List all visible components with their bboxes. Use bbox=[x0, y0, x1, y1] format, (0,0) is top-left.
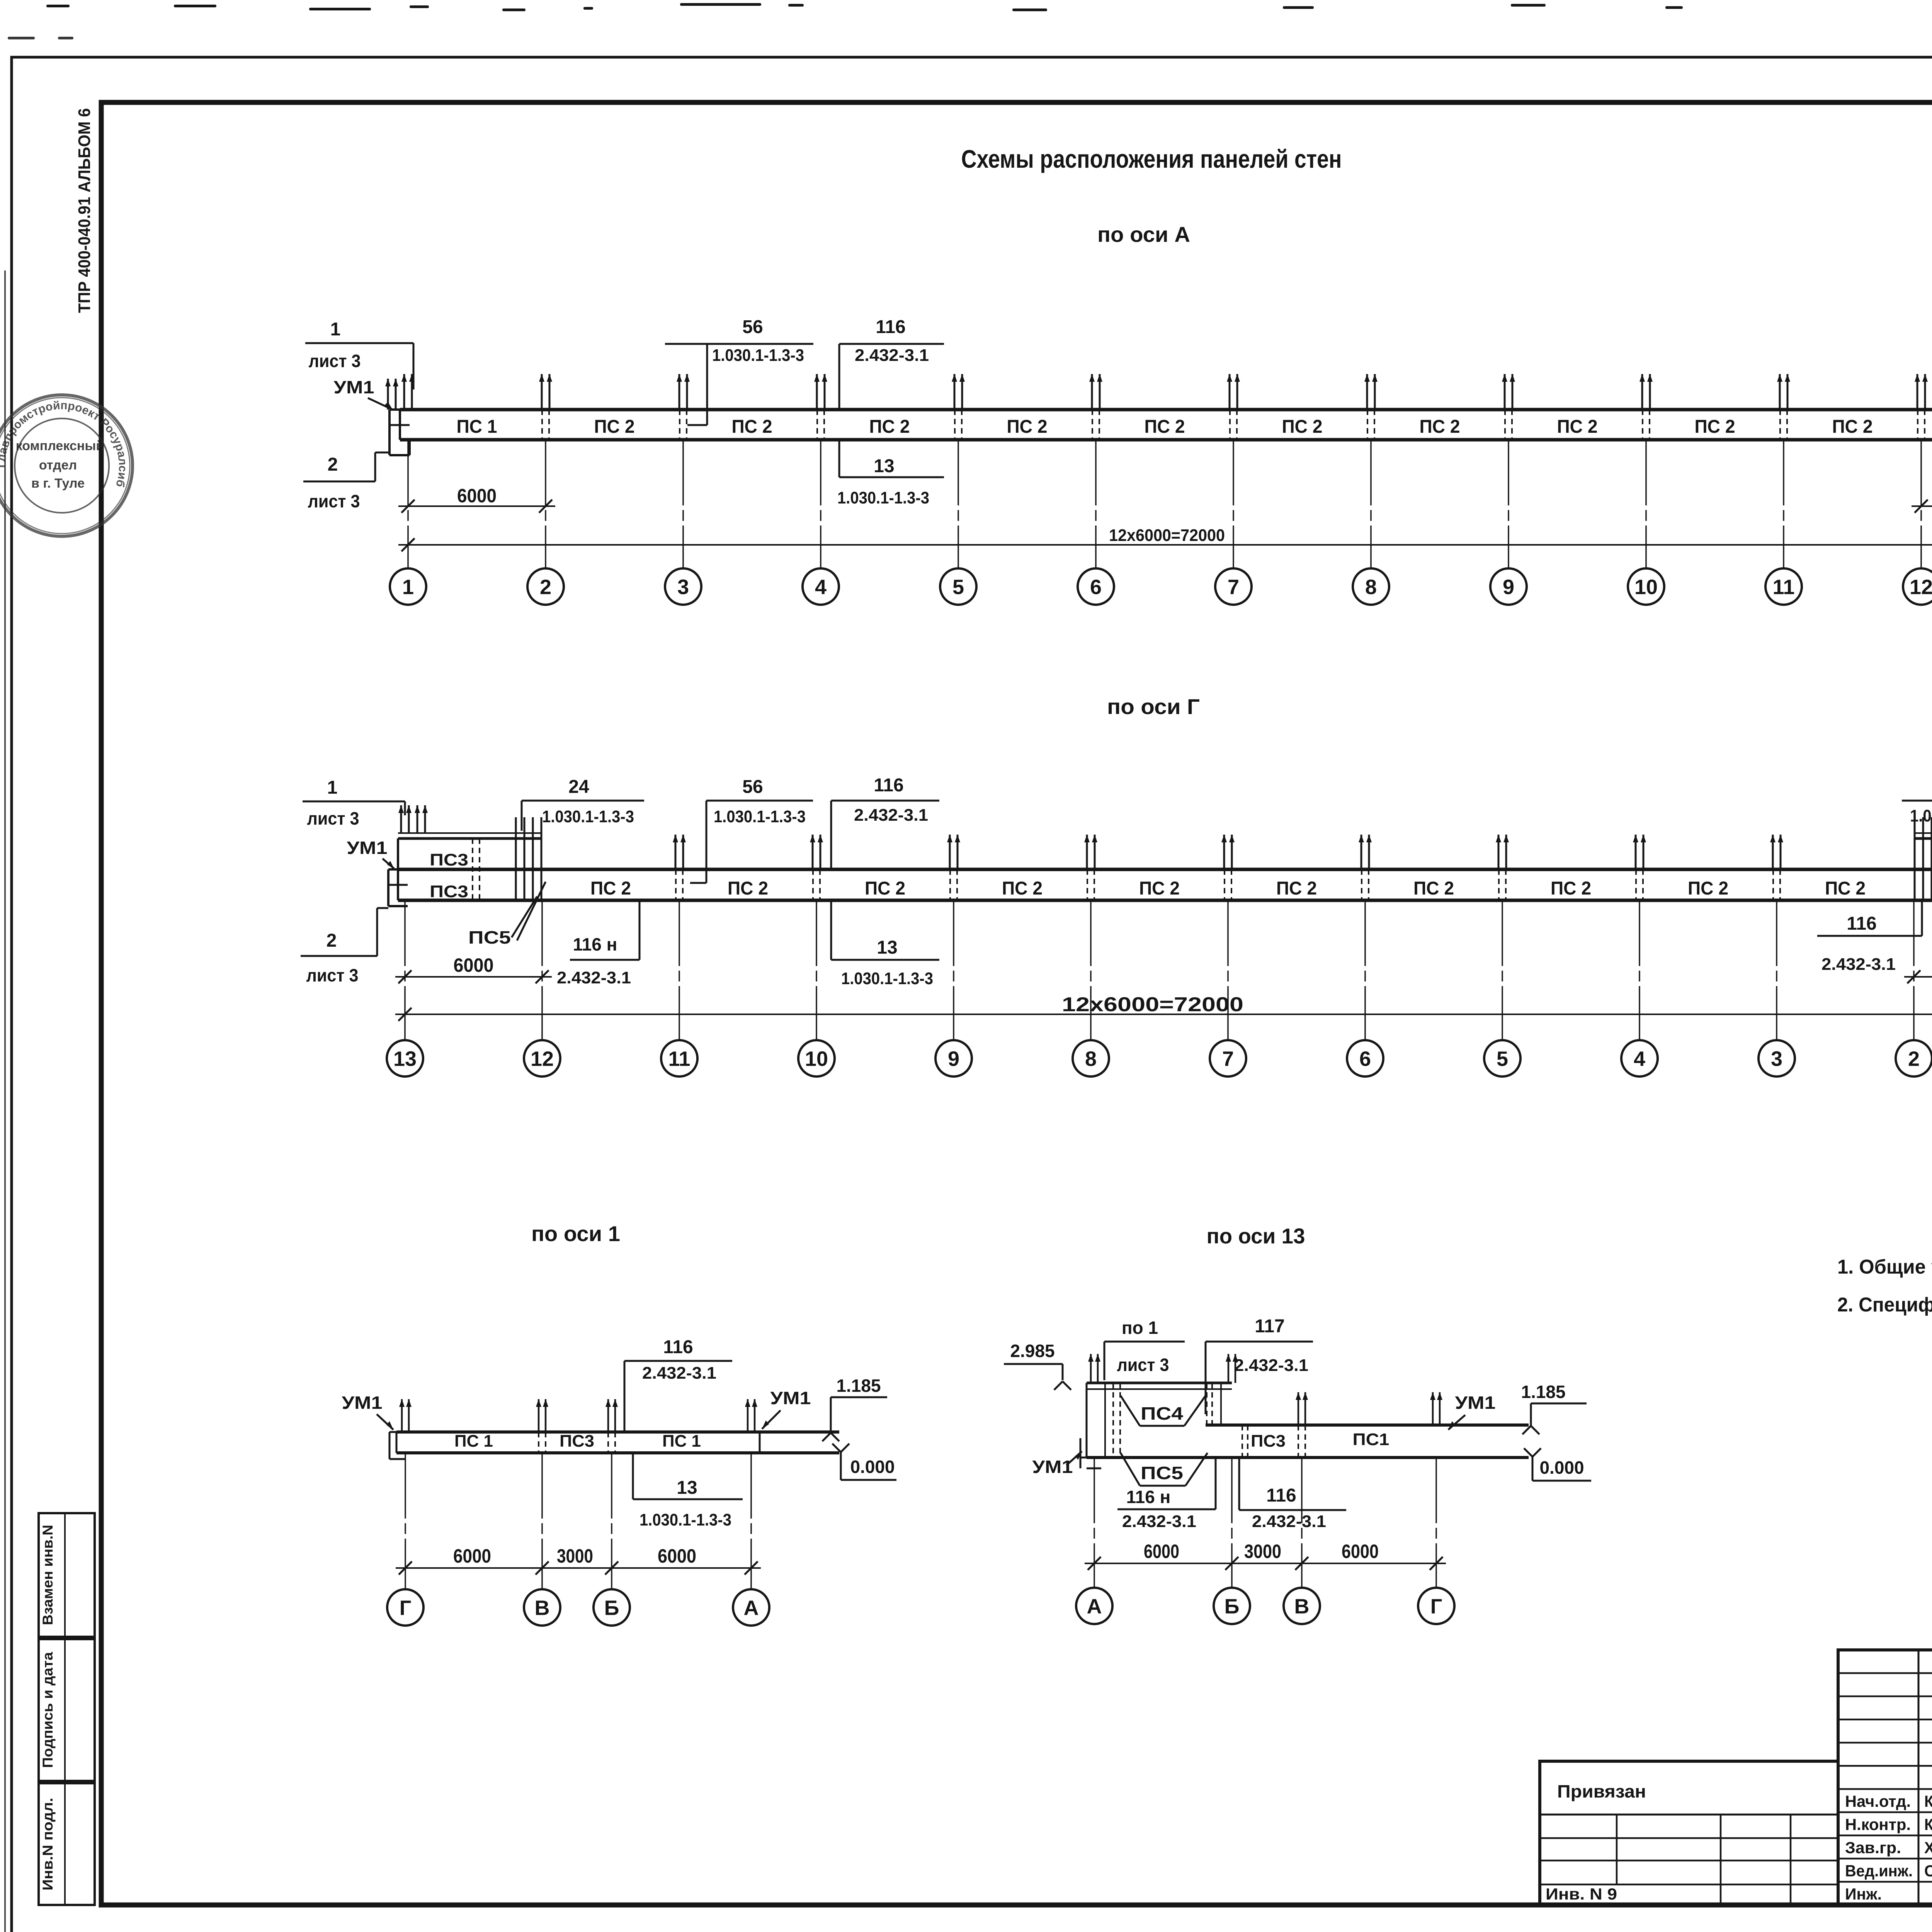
svg-text:6000: 6000 bbox=[454, 954, 494, 976]
svg-text:Серикова: Серикова bbox=[1924, 1862, 1932, 1880]
svg-text:А: А bbox=[744, 1596, 759, 1619]
svg-text:6000: 6000 bbox=[1144, 1541, 1179, 1562]
svg-text:11: 11 bbox=[1772, 575, 1794, 599]
svg-text:ПС 2: ПС 2 bbox=[728, 878, 768, 899]
svg-text:9: 9 bbox=[948, 1047, 959, 1070]
svg-text:ПС 1: ПС 1 bbox=[454, 1432, 493, 1451]
svg-text:2: 2 bbox=[328, 454, 338, 475]
svg-text:УМ1: УМ1 bbox=[334, 377, 374, 397]
svg-text:УМ1: УМ1 bbox=[1455, 1393, 1496, 1413]
svg-text:1.030.1-1.3-3: 1.030.1-1.3-3 bbox=[712, 346, 804, 365]
svg-text:12: 12 bbox=[531, 1047, 554, 1070]
svg-text:Б: Б bbox=[1225, 1595, 1240, 1618]
svg-text:117: 117 bbox=[1255, 1316, 1284, 1337]
svg-text:2. Спецификацию к схемам распо: 2. Спецификацию к схемам расположения па… bbox=[1837, 1294, 1932, 1316]
svg-text:Подпись и дата: Подпись и дата bbox=[40, 1652, 56, 1768]
svg-text:2.432-3.1: 2.432-3.1 bbox=[642, 1364, 716, 1383]
svg-text:ПС 1: ПС 1 bbox=[457, 417, 497, 437]
svg-text:лист 3: лист 3 bbox=[307, 808, 359, 828]
svg-text:Взамен инв.N: Взамен инв.N bbox=[40, 1525, 56, 1625]
svg-text:Вед.инж.: Вед.инж. bbox=[1845, 1862, 1913, 1880]
svg-text:2.432-3.1: 2.432-3.1 bbox=[557, 968, 631, 987]
svg-text:ПС 2: ПС 2 bbox=[1557, 417, 1598, 437]
svg-text:9: 9 bbox=[1503, 575, 1514, 599]
svg-text:ПС3: ПС3 bbox=[430, 850, 468, 869]
svg-text:Б: Б bbox=[604, 1596, 619, 1619]
svg-text:лист 3: лист 3 bbox=[308, 491, 360, 511]
svg-text:ПС 2: ПС 2 bbox=[1413, 878, 1454, 899]
svg-text:по оси А: по оси А bbox=[1097, 222, 1190, 247]
svg-text:2.432-3.1: 2.432-3.1 bbox=[855, 346, 929, 365]
svg-text:по оси 13: по оси 13 bbox=[1207, 1224, 1305, 1248]
svg-text:116: 116 bbox=[874, 775, 903, 796]
svg-text:1.030.1-1.3-3: 1.030.1-1.3-3 bbox=[1910, 806, 1932, 825]
svg-text:ПС 2: ПС 2 bbox=[1276, 878, 1317, 899]
svg-text:116: 116 bbox=[1266, 1485, 1296, 1506]
svg-text:ПС 2: ПС 2 bbox=[1139, 878, 1180, 899]
svg-text:2: 2 bbox=[327, 930, 337, 951]
svg-text:1.030.1-1.3-3: 1.030.1-1.3-3 bbox=[714, 807, 806, 826]
svg-text:13: 13 bbox=[874, 456, 894, 476]
svg-text:13: 13 bbox=[877, 937, 897, 958]
svg-text:8: 8 bbox=[1365, 575, 1377, 599]
svg-text:ПС3: ПС3 bbox=[560, 1432, 594, 1451]
svg-text:УМ1: УМ1 bbox=[770, 1388, 811, 1408]
svg-text:1.185: 1.185 bbox=[1521, 1382, 1565, 1402]
svg-text:1.030.1-1.3-3: 1.030.1-1.3-3 bbox=[837, 488, 929, 507]
svg-text:7: 7 bbox=[1228, 575, 1239, 599]
svg-text:11: 11 bbox=[668, 1047, 690, 1070]
svg-text:8: 8 bbox=[1085, 1047, 1097, 1070]
svg-text:Зав.гр.: Зав.гр. bbox=[1845, 1838, 1901, 1857]
svg-text:ПС 2: ПС 2 bbox=[1420, 417, 1460, 437]
svg-text:116: 116 bbox=[1847, 913, 1876, 934]
svg-text:ПС 2: ПС 2 bbox=[865, 878, 905, 899]
svg-text:6000: 6000 bbox=[1342, 1541, 1379, 1562]
svg-text:ТПР 400-040.91 АЛЬБОМ 6: ТПР 400-040.91 АЛЬБОМ 6 bbox=[75, 108, 94, 313]
svg-text:3: 3 bbox=[677, 575, 689, 599]
svg-text:0.000: 0.000 bbox=[1539, 1458, 1584, 1478]
svg-text:3000: 3000 bbox=[1244, 1541, 1281, 1562]
svg-text:5: 5 bbox=[952, 575, 964, 599]
svg-text:13: 13 bbox=[393, 1047, 417, 1070]
svg-text:56: 56 bbox=[742, 317, 763, 337]
svg-text:ПС 2: ПС 2 bbox=[1002, 878, 1043, 899]
svg-text:2.432-3.1: 2.432-3.1 bbox=[1252, 1512, 1326, 1531]
svg-text:ПС 2: ПС 2 bbox=[590, 878, 631, 899]
svg-text:в г. Туле: в г. Туле bbox=[31, 476, 85, 491]
svg-text:ПС 2: ПС 2 bbox=[1145, 417, 1185, 437]
svg-text:А: А bbox=[1087, 1595, 1102, 1618]
svg-text:1.030.1-1.3-3: 1.030.1-1.3-3 bbox=[542, 807, 634, 826]
svg-text:Кондратьев: Кондратьев bbox=[1924, 1792, 1932, 1810]
svg-text:ПС3: ПС3 bbox=[430, 882, 468, 901]
svg-text:ПС 2: ПС 2 bbox=[1825, 878, 1866, 899]
svg-text:УМ1: УМ1 bbox=[342, 1393, 383, 1413]
svg-text:ПС4: ПС4 bbox=[1141, 1403, 1183, 1423]
svg-text:ПС1: ПС1 bbox=[1353, 1430, 1389, 1449]
svg-text:12x6000=72000: 12x6000=72000 bbox=[1109, 526, 1225, 545]
svg-text:ПС 2: ПС 2 bbox=[1832, 417, 1873, 437]
svg-text:56: 56 bbox=[742, 777, 763, 797]
svg-text:10: 10 bbox=[1634, 575, 1658, 599]
svg-text:Хруслова: Хруслова bbox=[1924, 1838, 1932, 1857]
svg-text:по оси 1: по оси 1 bbox=[531, 1221, 620, 1246]
svg-text:Инж.: Инж. bbox=[1845, 1885, 1882, 1903]
svg-text:2.432-3.1: 2.432-3.1 bbox=[1234, 1356, 1308, 1375]
svg-text:4: 4 bbox=[815, 575, 827, 599]
svg-text:10: 10 bbox=[805, 1047, 828, 1070]
svg-text:В: В bbox=[535, 1596, 550, 1619]
svg-text:116 н: 116 н bbox=[573, 934, 617, 954]
svg-text:6: 6 bbox=[1359, 1047, 1371, 1070]
svg-text:1.185: 1.185 bbox=[836, 1376, 881, 1396]
svg-text:1. Общие указания см. на лист: 1. Общие указания см. на листе 1. bbox=[1837, 1256, 1932, 1278]
svg-text:1: 1 bbox=[402, 575, 414, 599]
svg-text:13: 13 bbox=[677, 1478, 697, 1498]
svg-text:5: 5 bbox=[1497, 1047, 1508, 1070]
svg-text:УМ1: УМ1 bbox=[347, 838, 388, 858]
svg-text:ПС 2: ПС 2 bbox=[732, 417, 772, 437]
svg-text:Инв.N подл.: Инв.N подл. bbox=[40, 1798, 56, 1891]
svg-text:Привязан: Привязан bbox=[1557, 1781, 1646, 1801]
svg-text:2.432-3.1: 2.432-3.1 bbox=[1821, 955, 1896, 974]
svg-text:лист 3: лист 3 bbox=[1117, 1355, 1169, 1375]
svg-text:1.030.1-1.3-3: 1.030.1-1.3-3 bbox=[841, 969, 933, 988]
svg-text:6000: 6000 bbox=[457, 485, 497, 507]
svg-text:1: 1 bbox=[330, 319, 341, 340]
svg-text:6: 6 bbox=[1090, 575, 1102, 599]
svg-text:6000: 6000 bbox=[453, 1545, 491, 1567]
svg-text:116 н: 116 н bbox=[1126, 1487, 1171, 1507]
svg-text:4: 4 bbox=[1634, 1047, 1645, 1070]
svg-text:УМ1: УМ1 bbox=[1032, 1457, 1073, 1477]
svg-text:1.030.1-1.3-3: 1.030.1-1.3-3 bbox=[639, 1510, 731, 1529]
svg-text:1: 1 bbox=[327, 777, 338, 798]
svg-text:лист 3: лист 3 bbox=[306, 965, 359, 985]
svg-text:ПС 1: ПС 1 bbox=[662, 1432, 701, 1451]
svg-text:ПС 2: ПС 2 bbox=[1282, 417, 1323, 437]
svg-text:7: 7 bbox=[1222, 1047, 1234, 1070]
svg-text:2.432-3.1: 2.432-3.1 bbox=[1122, 1512, 1196, 1531]
svg-text:116: 116 bbox=[876, 317, 905, 337]
svg-text:Н.контр.: Н.контр. bbox=[1845, 1815, 1911, 1833]
svg-text:комплексный: комплексный bbox=[16, 439, 104, 453]
svg-text:ПС5: ПС5 bbox=[1141, 1463, 1183, 1483]
svg-text:Нач.отд.: Нач.отд. bbox=[1845, 1792, 1911, 1810]
svg-text:24: 24 bbox=[568, 777, 589, 797]
svg-text:ПС 2: ПС 2 bbox=[1551, 878, 1591, 899]
svg-text:116: 116 bbox=[663, 1337, 693, 1357]
svg-text:Г: Г bbox=[1430, 1595, 1442, 1618]
svg-text:6000: 6000 bbox=[658, 1545, 696, 1567]
svg-text:ПС 2: ПС 2 bbox=[594, 417, 635, 437]
svg-text:Схемы расположения панелей сте: Схемы расположения панелей стен bbox=[961, 145, 1342, 173]
svg-text:Кондратьев: Кондратьев bbox=[1924, 1815, 1932, 1833]
svg-text:Г: Г bbox=[400, 1596, 412, 1619]
svg-text:лист 3: лист 3 bbox=[309, 351, 361, 371]
svg-text:Инв. N 9: Инв. N 9 bbox=[1546, 1885, 1617, 1903]
svg-text:12x6000=72000: 12x6000=72000 bbox=[1062, 993, 1243, 1016]
svg-text:ПС 2: ПС 2 bbox=[1007, 417, 1048, 437]
svg-text:ПС 2: ПС 2 bbox=[1695, 417, 1735, 437]
svg-text:по 1: по 1 bbox=[1122, 1318, 1158, 1338]
svg-text:по оси Г: по оси Г bbox=[1107, 694, 1200, 719]
svg-text:2: 2 bbox=[1908, 1047, 1920, 1070]
svg-text:ПС 2: ПС 2 bbox=[1688, 878, 1728, 899]
svg-text:3: 3 bbox=[1771, 1047, 1782, 1070]
svg-text:ПС 2: ПС 2 bbox=[869, 417, 910, 437]
svg-text:2.985: 2.985 bbox=[1010, 1341, 1054, 1361]
svg-text:ПС5: ПС5 bbox=[468, 927, 511, 947]
svg-text:отдел: отдел bbox=[39, 458, 77, 473]
svg-text:2: 2 bbox=[540, 575, 551, 599]
svg-text:3000: 3000 bbox=[557, 1545, 593, 1567]
svg-text:В: В bbox=[1294, 1595, 1310, 1618]
svg-text:0.000: 0.000 bbox=[850, 1457, 895, 1477]
svg-text:12: 12 bbox=[1910, 575, 1932, 599]
svg-text:ПС3: ПС3 bbox=[1251, 1432, 1286, 1451]
svg-text:2.432-3.1: 2.432-3.1 bbox=[854, 806, 928, 825]
